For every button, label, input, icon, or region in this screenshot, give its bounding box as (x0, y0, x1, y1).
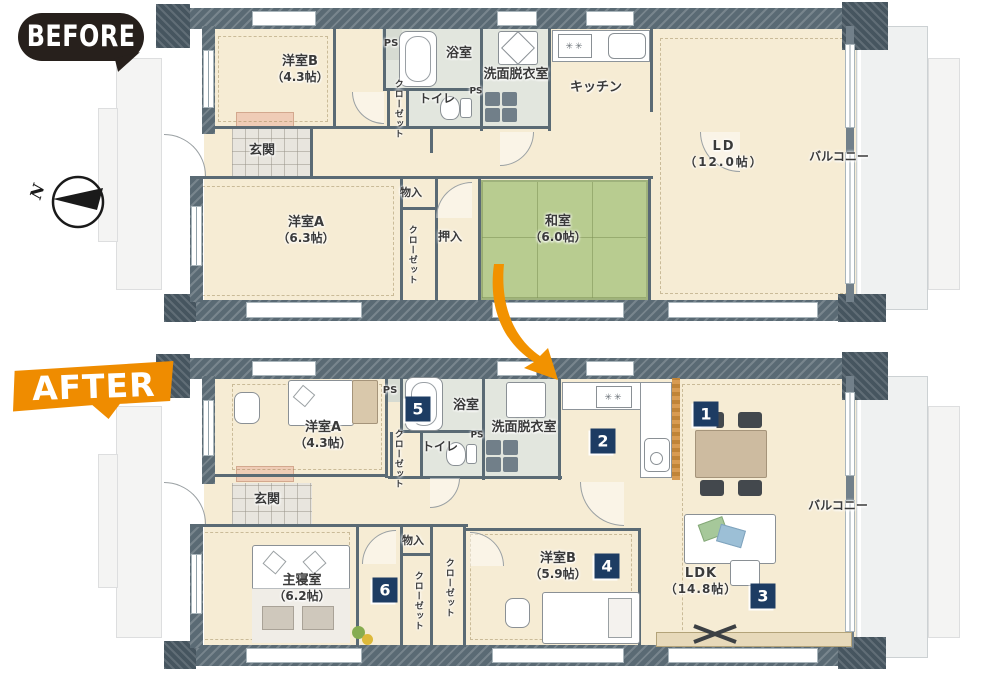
washbasin-icon (485, 92, 517, 122)
room-label-genkan: 玄関 (254, 492, 280, 508)
wall (430, 524, 433, 647)
balcony-area (856, 26, 928, 310)
window (845, 500, 855, 632)
kitchen-sink-icon (608, 33, 646, 59)
balcony-line (858, 30, 861, 306)
room-label-yoshitsu-b: 洋室B（4.3帖） (271, 54, 328, 87)
wall (310, 129, 313, 179)
wall (558, 378, 561, 480)
wall (215, 474, 388, 477)
plant-icon (362, 634, 373, 645)
ceiling-fan-icon (692, 624, 738, 644)
marker-4: 4 (595, 554, 620, 579)
wall (650, 28, 653, 112)
entrance-door-arc (164, 482, 206, 524)
room-label-washroom: 洗面脱衣室 (483, 67, 548, 83)
room-label-ps: PS (384, 38, 399, 51)
counter-edge-wood (672, 378, 680, 480)
window (668, 302, 818, 318)
washbasin-icon (486, 440, 518, 472)
stove-icon: ✳✳ (558, 34, 592, 58)
chair-icon (234, 392, 260, 424)
room-label-yoshitsu-a: 洋室A（6.3帖） (277, 215, 334, 248)
cushion-icon (302, 606, 334, 630)
cabinet-icon (352, 380, 378, 424)
window (252, 361, 316, 376)
window (246, 302, 362, 318)
room-label-washitsu: 和室（6.0帖） (529, 214, 586, 247)
room-label-closet: クローゼット (406, 225, 415, 285)
tv-board (656, 632, 852, 647)
chair-icon (700, 480, 724, 496)
wall (400, 378, 403, 434)
room-label-ps: PS (470, 430, 483, 441)
wall (430, 129, 433, 153)
room-label-oshiire: 押入 (438, 230, 462, 245)
wall (190, 176, 653, 179)
window (586, 11, 634, 26)
window (246, 648, 362, 663)
room-label-balcony: バルコニー (808, 499, 868, 514)
room-label-yoshitsu-b: 洋室B（5.9帖） (529, 551, 586, 584)
wall (406, 88, 409, 129)
room-label-balcony: バルコニー (809, 150, 869, 165)
window (668, 648, 818, 663)
exterior-outline (116, 406, 162, 638)
wall (387, 88, 390, 129)
toilet-tank (460, 98, 472, 118)
marker-5: 5 (406, 397, 431, 422)
room-label-toilet: トイレ (422, 440, 458, 455)
window (845, 44, 855, 128)
room-label-closet: クローゼット (443, 558, 452, 618)
window (203, 50, 214, 108)
room-label-closet: クローゼット (392, 429, 401, 489)
balcony-area (856, 376, 928, 658)
toilet-tank (466, 444, 477, 464)
wall (648, 179, 651, 301)
balcony-line (858, 380, 861, 654)
room-label-yoshitsu-a: 洋室A（4.3帖） (294, 420, 351, 453)
chair-icon (738, 412, 762, 428)
window (191, 554, 202, 614)
chair-icon (505, 598, 530, 628)
marker-6: 6 (373, 578, 398, 603)
chair-icon (738, 480, 762, 496)
room-label-closet: クローゼット (392, 79, 401, 139)
room-label-washroom: 洗面脱衣室 (491, 420, 556, 436)
wall-corner (156, 4, 190, 48)
wall (463, 528, 641, 531)
room-label-ld: LD（12.0帖） (684, 139, 764, 172)
wall (190, 524, 468, 527)
exterior-outline (98, 454, 118, 588)
marker-1: 1 (694, 402, 719, 427)
cushion-icon (262, 606, 294, 630)
sink-drain (650, 452, 663, 465)
marker-3: 3 (751, 584, 776, 609)
room-label-shinshitsu: 主寝室（6.2帖） (273, 573, 330, 606)
room-label-monoire: 物入 (402, 534, 424, 548)
before-badge: BEFORE (18, 13, 144, 61)
room-label-closet: クローゼット (412, 571, 421, 631)
room-label-monoire: 物入 (400, 186, 422, 200)
renovation-floorplan-comparison: ✳✳ (0, 0, 1000, 681)
wall (388, 476, 562, 479)
room-label-bathroom: 浴室 (446, 46, 472, 62)
north-compass-icon (48, 172, 108, 232)
window (252, 11, 316, 26)
wall (463, 524, 466, 647)
stove-icon: ✳✳ (596, 386, 632, 408)
room-label-toilet: トイレ (419, 92, 455, 107)
window (497, 11, 537, 26)
room-label-kitchen: キッチン (570, 80, 622, 96)
wall (333, 28, 336, 128)
room-label-ps: PS (469, 86, 482, 97)
room-label-ps: PS (383, 385, 398, 398)
room-label-ldk: LDK（14.8帖） (665, 566, 738, 599)
before-to-after-arrow (470, 258, 580, 388)
bathtub-inner (405, 36, 431, 82)
pillow-icon (608, 598, 632, 638)
window (845, 392, 855, 476)
room-label-bathroom: 浴室 (453, 398, 479, 414)
wall (482, 378, 485, 480)
window (845, 152, 855, 284)
wall (400, 553, 433, 556)
window (586, 361, 634, 376)
marker-2: 2 (591, 429, 616, 454)
wall (387, 126, 551, 129)
wall (400, 207, 438, 210)
exterior-outline (928, 406, 960, 638)
dining-table-icon (695, 430, 767, 478)
window (492, 648, 624, 663)
room-label-genkan: 玄関 (249, 143, 275, 159)
window (191, 206, 202, 266)
window (203, 400, 214, 456)
